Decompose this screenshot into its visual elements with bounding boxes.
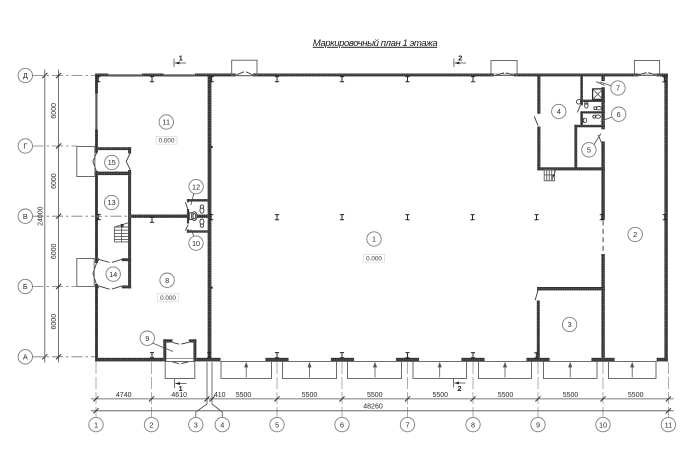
svg-text:А: А: [23, 353, 28, 362]
svg-text:5500: 5500: [433, 392, 449, 399]
svg-text:5500: 5500: [628, 392, 644, 399]
svg-text:7: 7: [616, 84, 620, 93]
svg-text:15: 15: [108, 158, 116, 167]
svg-text:7: 7: [405, 420, 409, 429]
svg-text:14: 14: [109, 270, 117, 279]
svg-text:9: 9: [145, 334, 149, 343]
svg-text:Г: Г: [23, 142, 27, 151]
svg-text:6000: 6000: [51, 103, 58, 119]
svg-text:Б: Б: [23, 282, 28, 291]
svg-text:3: 3: [194, 420, 198, 429]
svg-text:4740: 4740: [116, 392, 132, 399]
svg-text:Маркировочный план 1 этажа: Маркировочный план 1 этажа: [313, 38, 438, 49]
svg-text:12: 12: [192, 182, 200, 191]
svg-text:0.000: 0.000: [159, 137, 175, 144]
svg-text:11: 11: [163, 118, 171, 127]
svg-text:5500: 5500: [563, 392, 579, 399]
svg-text:48260: 48260: [363, 404, 383, 411]
svg-text:5500: 5500: [498, 392, 514, 399]
svg-text:2: 2: [633, 230, 637, 239]
svg-text:4: 4: [220, 420, 224, 429]
svg-text:2: 2: [149, 420, 153, 429]
svg-text:5500: 5500: [302, 392, 318, 399]
svg-text:5500: 5500: [367, 392, 383, 399]
svg-text:5: 5: [587, 146, 591, 155]
svg-text:5: 5: [275, 420, 279, 429]
svg-text:2: 2: [457, 384, 461, 393]
svg-text:6000: 6000: [51, 244, 58, 260]
svg-text:6000: 6000: [51, 173, 58, 189]
svg-text:8: 8: [165, 276, 169, 285]
svg-text:10: 10: [599, 420, 607, 429]
svg-text:3: 3: [568, 320, 572, 329]
svg-text:6: 6: [340, 420, 344, 429]
svg-text:1: 1: [372, 235, 376, 244]
svg-text:0.000: 0.000: [366, 255, 382, 262]
svg-text:0.000: 0.000: [160, 295, 176, 302]
svg-text:4610: 4610: [171, 392, 187, 399]
svg-text:5500: 5500: [236, 392, 252, 399]
svg-text:10: 10: [192, 239, 200, 248]
svg-text:В: В: [23, 212, 28, 221]
svg-text:8: 8: [471, 420, 475, 429]
svg-text:1: 1: [94, 420, 98, 429]
svg-text:11: 11: [665, 420, 673, 429]
svg-text:2: 2: [458, 54, 462, 63]
svg-text:9: 9: [536, 420, 540, 429]
svg-text:Д: Д: [23, 71, 28, 80]
svg-text:410: 410: [214, 392, 226, 399]
svg-text:1: 1: [179, 53, 184, 62]
svg-text:6000: 6000: [51, 314, 58, 330]
svg-text:13: 13: [108, 198, 116, 207]
svg-text:6: 6: [617, 110, 621, 119]
svg-text:4: 4: [557, 107, 561, 116]
svg-text:24000: 24000: [37, 206, 44, 226]
